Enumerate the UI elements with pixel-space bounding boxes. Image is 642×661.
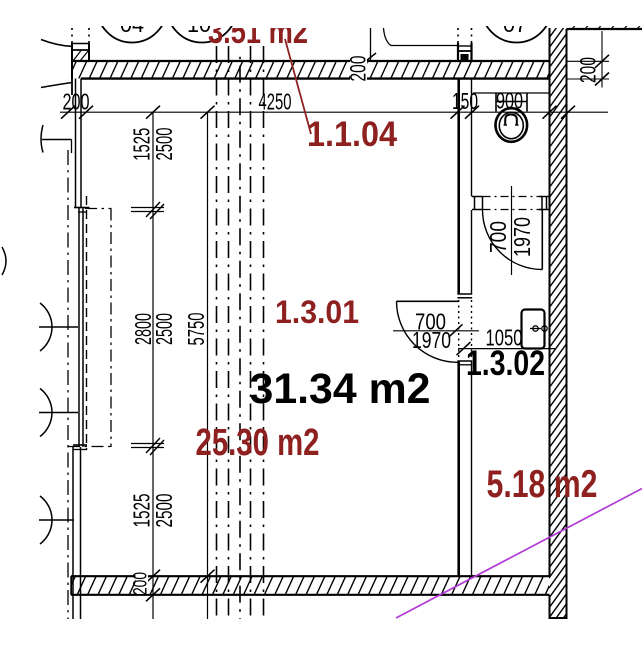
svg-text:200: 200: [576, 57, 601, 83]
svg-text:700: 700: [485, 221, 511, 253]
svg-text:1.3.02: 1.3.02: [466, 344, 545, 383]
svg-text:900: 900: [496, 88, 523, 114]
svg-text:5.18 m2: 5.18 m2: [487, 463, 598, 506]
svg-text:1.1.04: 1.1.04: [307, 115, 397, 154]
svg-text:31.34 m2: 31.34 m2: [250, 365, 431, 413]
svg-text:1970: 1970: [509, 217, 535, 257]
svg-text:5750: 5750: [183, 313, 209, 346]
svg-text:200: 200: [63, 89, 90, 115]
svg-text:2500: 2500: [151, 313, 177, 345]
svg-text:200: 200: [131, 572, 152, 595]
svg-text:150: 150: [452, 88, 478, 114]
svg-text:1.3.01: 1.3.01: [275, 294, 359, 330]
svg-text:25.30 m2: 25.30 m2: [196, 422, 320, 464]
svg-text:2500: 2500: [151, 494, 177, 528]
svg-text:2500: 2500: [151, 128, 177, 161]
svg-text:200: 200: [346, 56, 371, 82]
